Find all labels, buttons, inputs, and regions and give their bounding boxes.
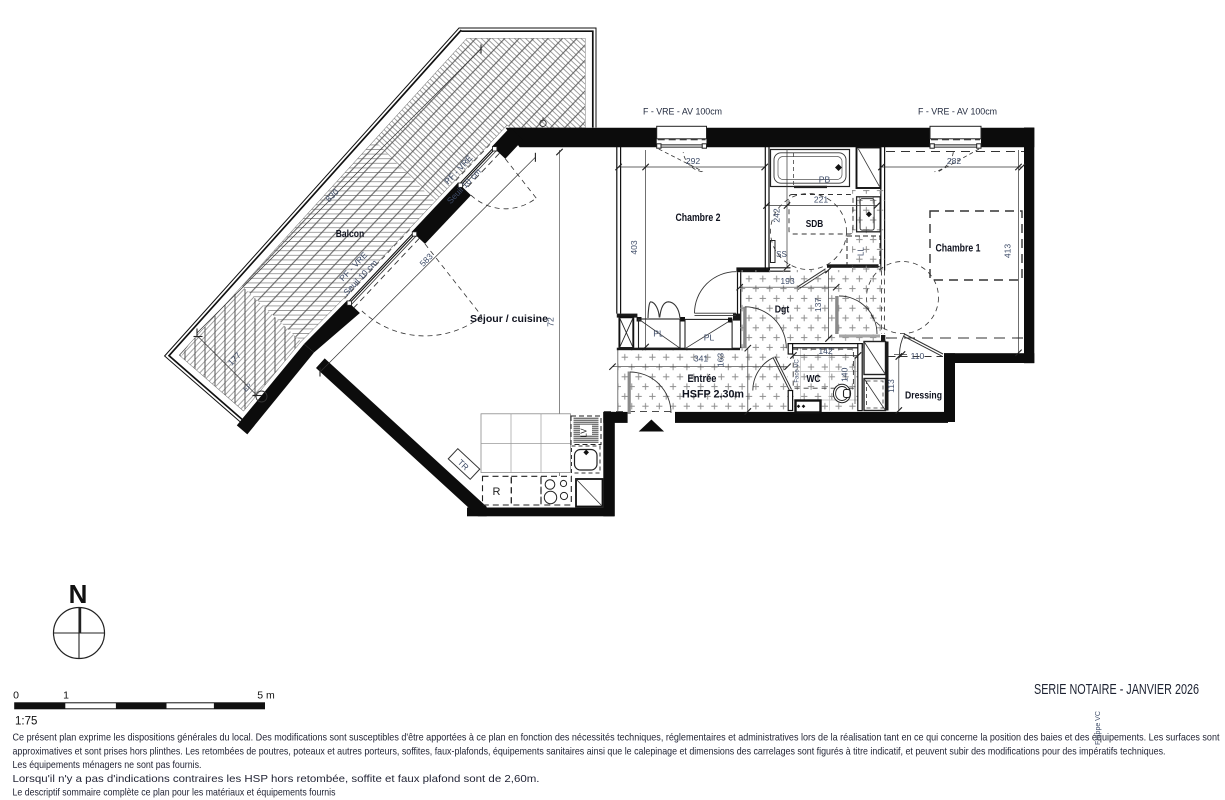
svg-text:Chambre 2: Chambre 2 bbox=[676, 212, 721, 224]
svg-text:5 m: 5 m bbox=[257, 690, 275, 702]
svg-text:242: 242 bbox=[772, 208, 782, 223]
svg-text:413: 413 bbox=[1003, 244, 1013, 259]
svg-text:Lorsqu'il n'y a pas d'indicati: Lorsqu'il n'y a pas d'indications contra… bbox=[13, 774, 540, 785]
svg-text:Chambre 1: Chambre 1 bbox=[936, 243, 981, 255]
svg-text:N: N bbox=[69, 579, 88, 609]
svg-text:140: 140 bbox=[840, 367, 850, 382]
svg-text:113: 113 bbox=[886, 379, 896, 393]
svg-text:163: 163 bbox=[715, 353, 725, 368]
svg-text:SERIE NOTAIRE - JANVIER 2026: SERIE NOTAIRE - JANVIER 2026 bbox=[1034, 682, 1199, 698]
svg-text:292: 292 bbox=[686, 156, 701, 166]
svg-text:110: 110 bbox=[911, 351, 925, 361]
svg-text:1:75: 1:75 bbox=[15, 716, 37, 728]
svg-text:Balcon: Balcon bbox=[336, 228, 365, 240]
svg-text:PL: PL bbox=[704, 332, 715, 342]
svg-text:R: R bbox=[493, 486, 501, 498]
svg-text:403: 403 bbox=[629, 240, 639, 255]
svg-text:LL: LL bbox=[857, 247, 866, 256]
svg-text:Dressing: Dressing bbox=[905, 390, 942, 402]
svg-text:SDB: SDB bbox=[806, 218, 824, 230]
svg-text:72: 72 bbox=[546, 317, 556, 327]
svg-text:Le descriptif sommaire complèt: Le descriptif sommaire complète ce plan … bbox=[13, 788, 336, 799]
svg-text:F - VRE - AV 100cm: F - VRE - AV 100cm bbox=[643, 107, 722, 118]
svg-text:Ce présent plan exprime les di: Ce présent plan exprime les dispositions… bbox=[13, 733, 1220, 744]
svg-text:WC: WC bbox=[807, 373, 821, 385]
svg-text:282: 282 bbox=[947, 156, 962, 166]
svg-text:HSFP 2.30m: HSFP 2.30m bbox=[682, 388, 744, 400]
svg-text:142: 142 bbox=[818, 346, 833, 356]
svg-text:F - VRE - AV 100cm: F - VRE - AV 100cm bbox=[918, 107, 997, 118]
svg-text:137: 137 bbox=[813, 298, 823, 313]
svg-text:Séjour / cuisine: Séjour / cuisine bbox=[470, 313, 548, 325]
svg-text:221: 221 bbox=[814, 194, 829, 204]
svg-text:1: 1 bbox=[63, 690, 69, 702]
svg-text:Entrée: Entrée bbox=[688, 373, 717, 385]
svg-text:Les équipements ménagers ne so: Les équipements ménagers ne sont pas fou… bbox=[13, 760, 202, 771]
svg-text:Face VC: Face VC bbox=[795, 359, 801, 383]
svg-text:PB: PB bbox=[819, 175, 831, 185]
svg-text:approximatives et sont prises: approximatives et sont prises hors plint… bbox=[13, 746, 1166, 757]
svg-text:LV: LV bbox=[580, 428, 589, 438]
svg-text:0: 0 bbox=[13, 690, 19, 702]
svg-text:341: 341 bbox=[694, 354, 709, 364]
svg-text:193: 193 bbox=[780, 276, 795, 286]
svg-text:Dgt: Dgt bbox=[775, 304, 790, 316]
svg-text:PL: PL bbox=[653, 329, 664, 339]
